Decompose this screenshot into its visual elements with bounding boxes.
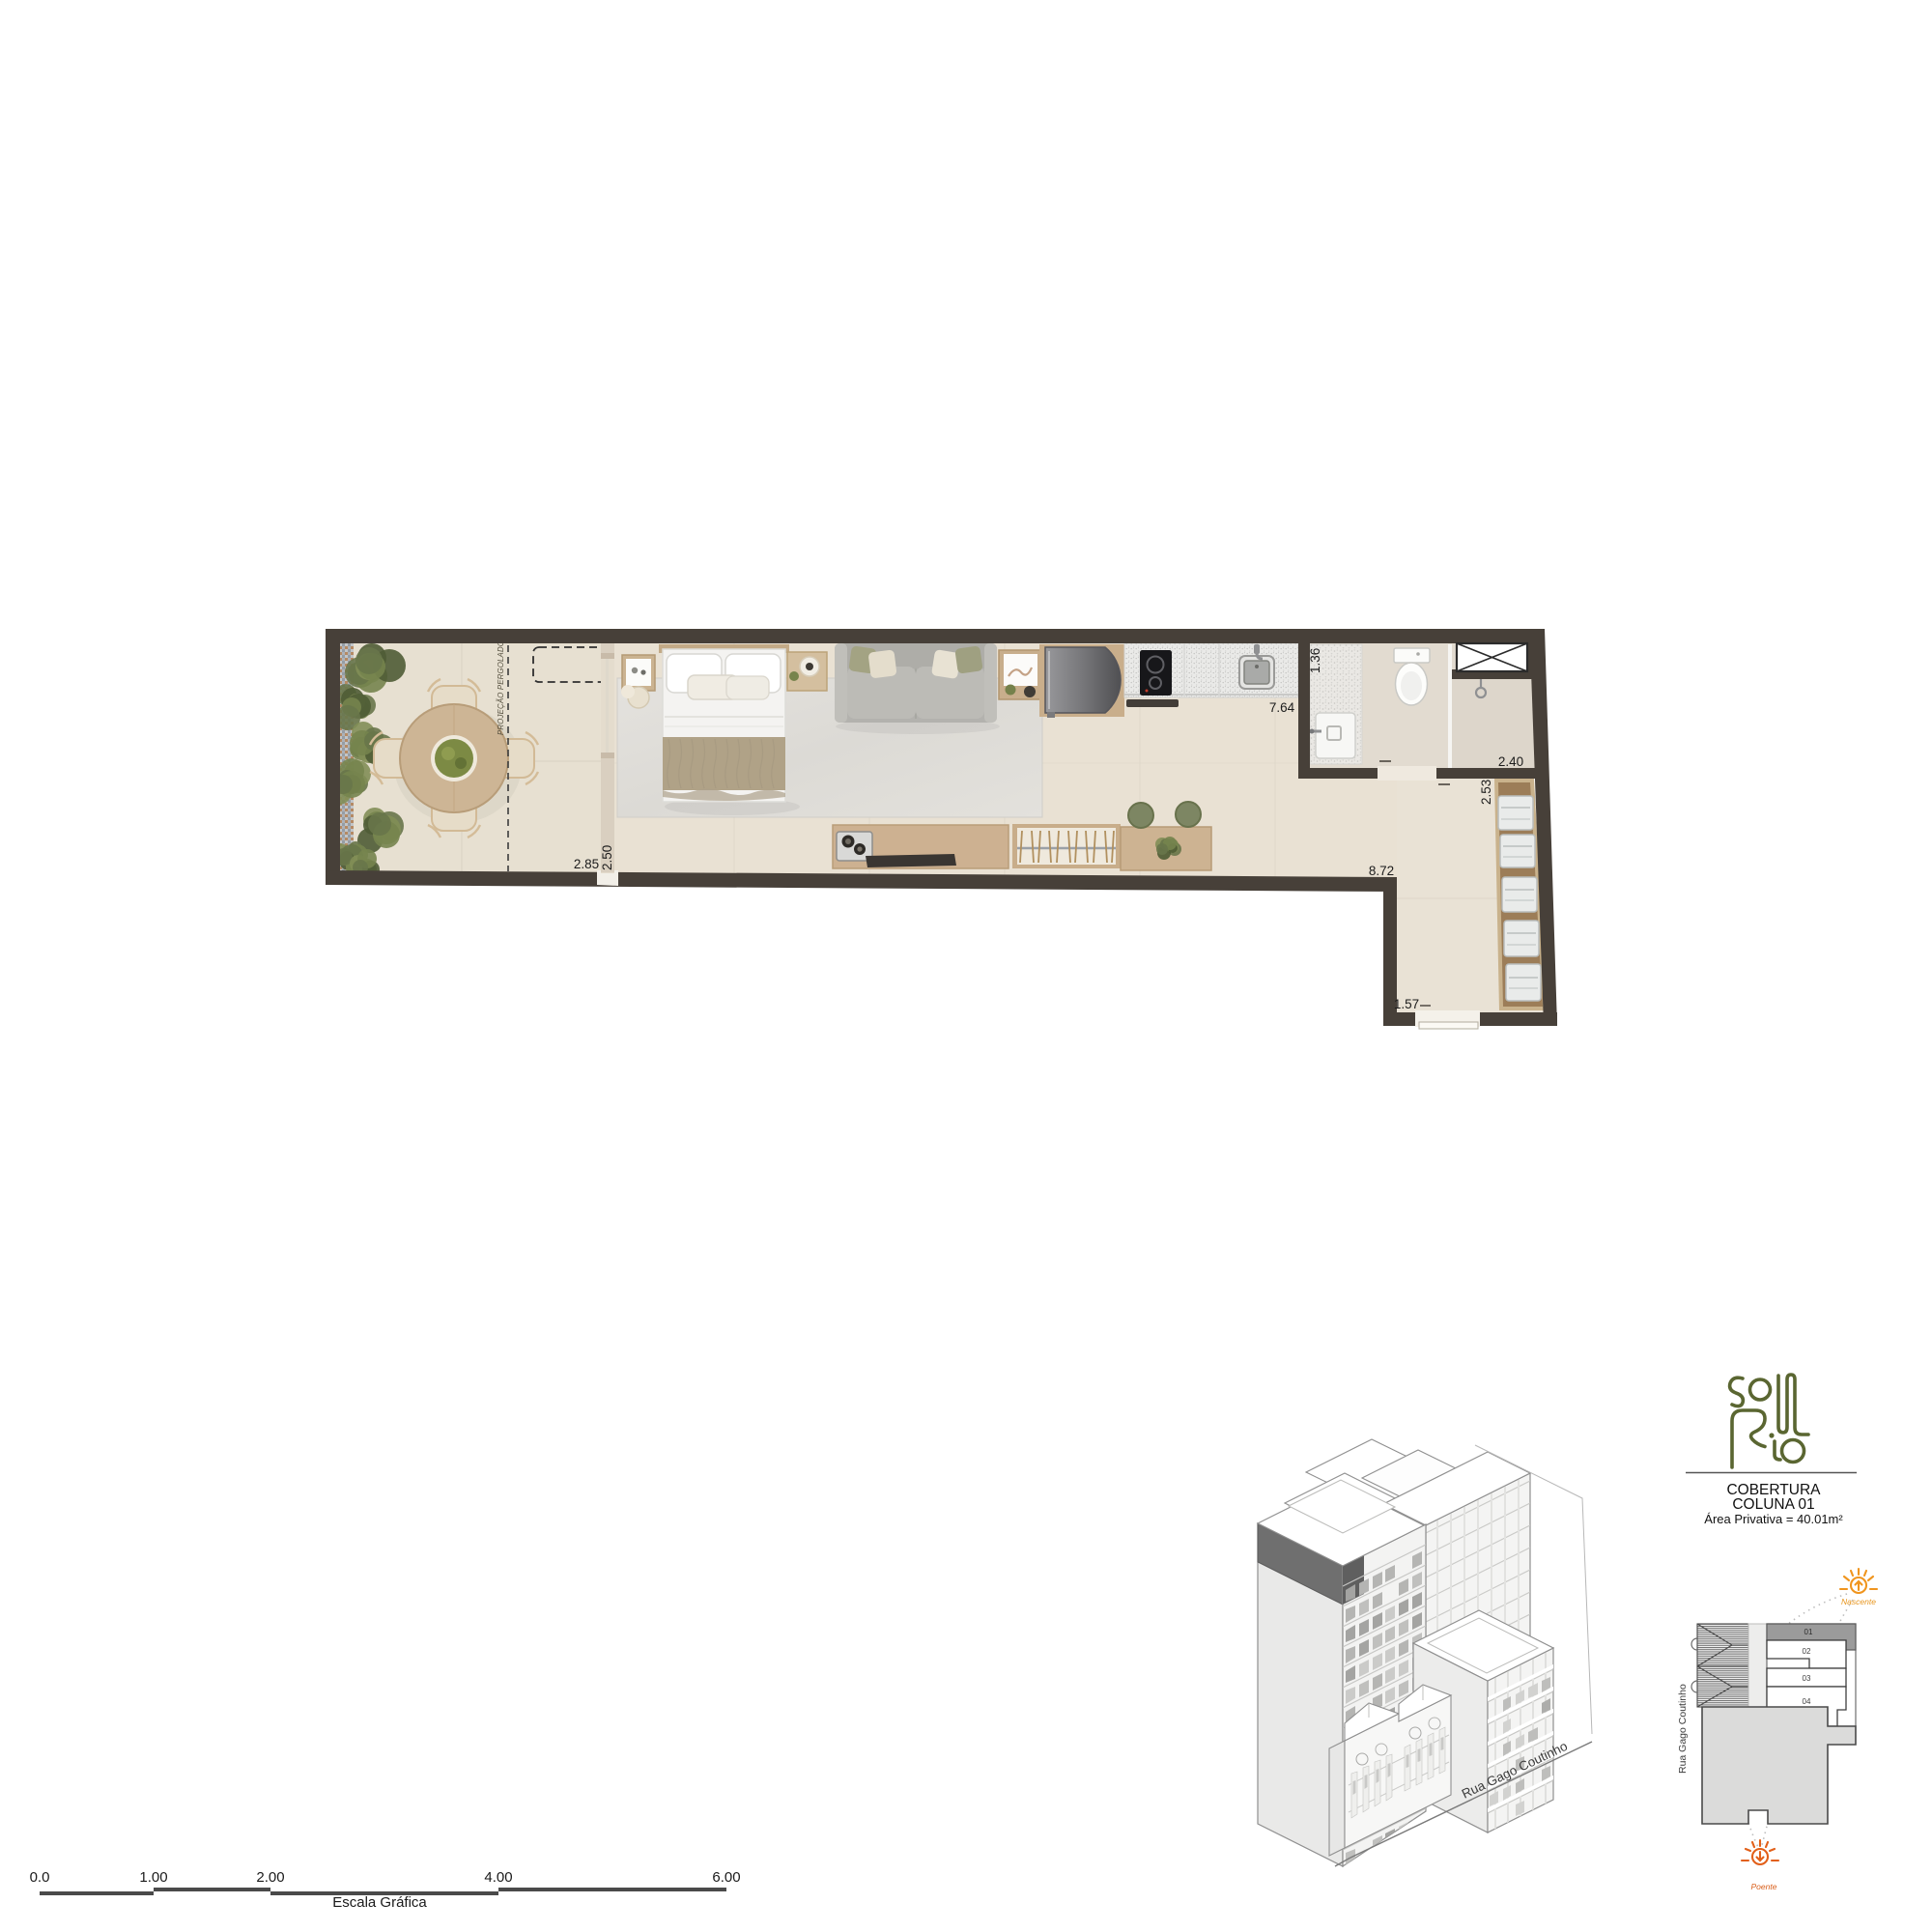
svg-text:1.00: 1.00 — [139, 1869, 167, 1886]
svg-text:2.85: 2.85 — [574, 857, 599, 871]
svg-text:COLUNA 01: COLUNA 01 — [1732, 1496, 1814, 1513]
svg-text:2.00: 2.00 — [256, 1869, 284, 1886]
svg-text:6.00: 6.00 — [712, 1869, 740, 1886]
svg-text:01: 01 — [1804, 1628, 1813, 1636]
svg-text:Escala Gráfica: Escala Gráfica — [332, 1894, 427, 1911]
svg-text:PROJEÇÃO PERGOLADO: PROJEÇÃO PERGOLADO — [497, 640, 505, 735]
svg-text:4.00: 4.00 — [484, 1869, 512, 1886]
svg-text:2.40: 2.40 — [1498, 754, 1523, 769]
svg-text:03: 03 — [1803, 1674, 1811, 1683]
svg-text:Poente: Poente — [1751, 1882, 1777, 1891]
svg-text:02: 02 — [1803, 1647, 1811, 1656]
svg-text:Nascente: Nascente — [1841, 1597, 1876, 1606]
svg-text:Área Privativa = 40.01m²: Área Privativa = 40.01m² — [1704, 1512, 1843, 1526]
svg-text:0.0: 0.0 — [30, 1869, 50, 1886]
svg-text:2.50: 2.50 — [600, 845, 614, 870]
svg-text:1.57: 1.57 — [1394, 997, 1419, 1011]
svg-text:04: 04 — [1803, 1697, 1811, 1706]
svg-text:8.72: 8.72 — [1369, 864, 1394, 878]
svg-text:2.53: 2.53 — [1479, 780, 1493, 805]
svg-text:1.36: 1.36 — [1308, 648, 1322, 673]
svg-text:7.64: 7.64 — [1269, 700, 1295, 715]
svg-text:Rua Gago Coutinho: Rua Gago Coutinho — [1677, 1684, 1689, 1774]
